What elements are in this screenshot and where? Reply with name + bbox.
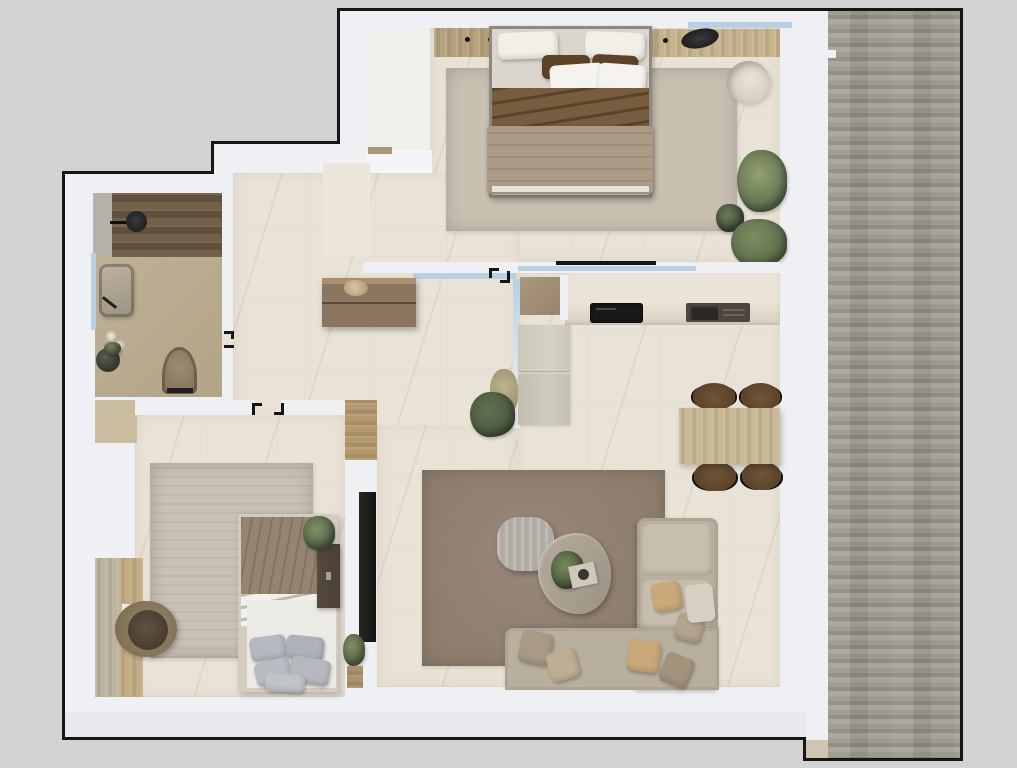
sofa-pillow-5 [650,580,684,614]
outline-top [337,8,963,11]
sink-basin [99,264,134,317]
dining-chair-4 [742,462,781,490]
bedroom2-pillow-5 [265,673,306,693]
sofa-cushion-1 [642,524,713,576]
tall-cabinet-upper [518,325,570,372]
kitchen-tan-block [520,277,560,315]
bedroom2-door-jamb-4 [281,403,284,415]
sideboard-decor-flowers [344,280,368,296]
dining-chair-2 [741,383,780,410]
bathroom-door-jamb-2 [231,331,234,339]
master-window [688,22,792,28]
shower-tile-strip [93,193,112,256]
sideboard-divider [322,302,416,304]
kitchen-sink-basin [690,306,718,320]
sofa-pillow-3 [626,638,662,674]
bedroom2-plant [303,516,335,550]
bedroom2-desk-chair-seat [128,610,168,650]
deck-terrace [828,10,962,760]
outline-step1-h [62,171,214,174]
outline-step2-h [211,141,340,144]
bed-footer-sheet [492,186,649,192]
master-bed [489,26,652,198]
master-door-jamb-4 [507,271,510,281]
storage-niche-floor [95,400,137,443]
tall-cabinet-lower [518,374,570,425]
outline-bottom [62,737,806,740]
tv-wall-shelves [345,400,377,460]
outline-right [960,8,963,761]
master-door-jamb-2 [489,268,492,278]
deck-threshold-tab [824,50,836,58]
entry-threshold [368,147,392,154]
tv-wall-lower-shelf [347,666,363,688]
cooktop-knobs [596,308,616,310]
dining-chair-1 [693,383,735,410]
dining-chair-3 [694,462,736,491]
kitchen-block-wall-stub [560,275,568,320]
wardrobe-handle-4 [663,38,668,43]
master-tv-bar [556,261,656,265]
glass-strip-b [413,273,516,279]
round-pouf [727,61,770,104]
partition-plant-monstera [470,392,515,437]
bedroom2-door-jamb-2 [252,403,262,406]
nightstand-handle [326,572,331,580]
sofa-throw [684,583,716,624]
master-closet-nook [363,28,430,153]
glass-strip-a [518,266,696,271]
outline-step1-v [211,141,214,174]
floor-plan-canvas [0,0,1017,768]
dining-table [679,408,780,464]
bed-duvet [487,126,653,194]
shower-head [126,211,147,232]
kitchen-sink-drainer [723,309,745,311]
bath-plant [104,342,121,355]
bedroom2-top-wall [135,400,345,415]
tv-wall-plant [343,634,365,666]
wardrobe-handle-1 [465,37,470,42]
outline-left [62,171,65,740]
cooktop [590,303,643,323]
master-plant-palm [737,150,787,212]
outline-step2-v [337,8,340,144]
tv-panel [359,492,376,642]
bathroom-right-wall [222,172,233,400]
outline-deck-step [803,737,806,761]
master-plant-fern [731,219,787,267]
entry-alcove-floor [323,163,370,256]
terrace-shade-band [65,712,806,737]
outline-deck-bottom [805,758,963,761]
deck-step [806,740,828,758]
bath-candle-1 [106,331,116,341]
coffee-table-bowl [578,569,589,580]
toilet-hinge [167,388,193,393]
bathroom-door-jamb-3 [224,345,234,348]
bathroom-window [91,253,96,330]
